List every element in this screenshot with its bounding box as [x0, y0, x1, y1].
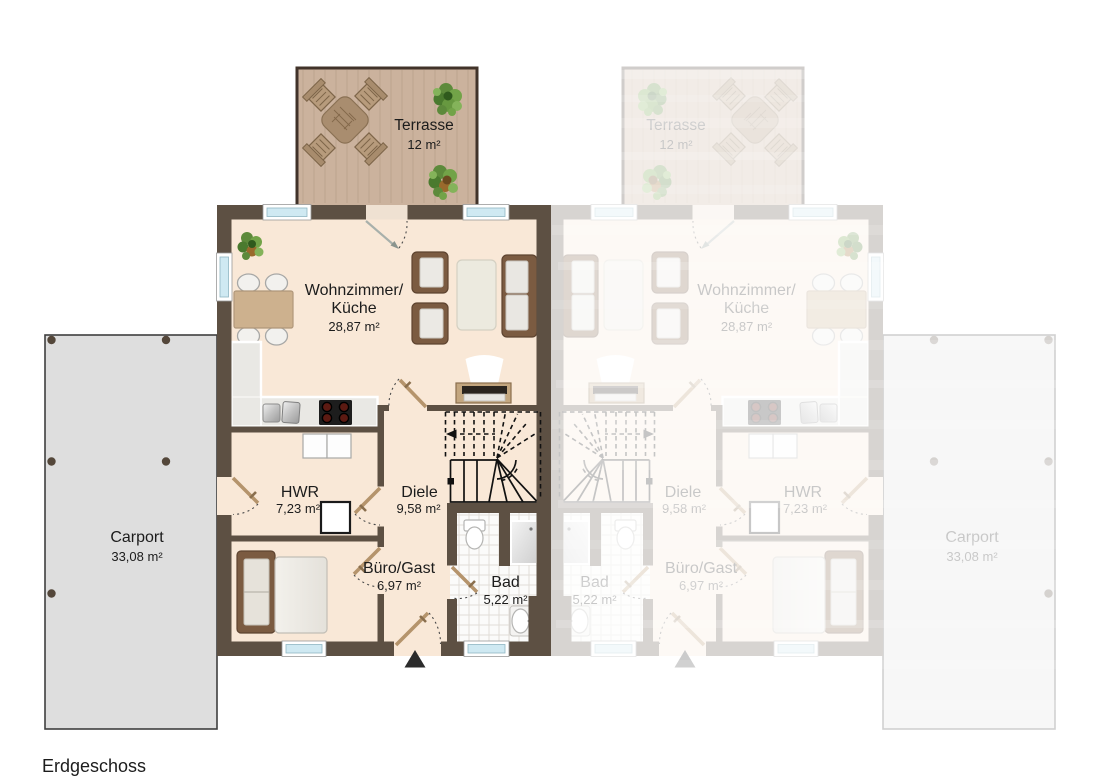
svg-text:5,22 m²: 5,22 m²	[572, 592, 617, 607]
svg-text:12 m²: 12 m²	[659, 137, 693, 152]
svg-text:5,22 m²: 5,22 m²	[483, 592, 528, 607]
svg-text:9,58 m²: 9,58 m²	[396, 501, 441, 516]
svg-text:Büro/Gast: Büro/Gast	[363, 560, 436, 577]
svg-text:Bad: Bad	[491, 574, 519, 591]
svg-text:HWR: HWR	[281, 484, 319, 501]
svg-text:33,08 m²: 33,08 m²	[946, 549, 998, 564]
svg-text:12 m²: 12 m²	[407, 137, 441, 152]
svg-text:28,87 m²: 28,87 m²	[721, 319, 773, 334]
svg-text:Büro/Gast: Büro/Gast	[665, 560, 738, 577]
svg-text:Diele: Diele	[401, 484, 438, 501]
svg-text:Terrasse: Terrasse	[394, 117, 453, 134]
svg-text:6,97 m²: 6,97 m²	[377, 578, 422, 593]
svg-text:Carport: Carport	[110, 529, 164, 546]
svg-text:Wohnzimmer/: Wohnzimmer/	[697, 282, 796, 299]
svg-text:Wohnzimmer/: Wohnzimmer/	[305, 282, 404, 299]
svg-text:Erdgeschoss: Erdgeschoss	[42, 756, 146, 776]
svg-text:Diele: Diele	[665, 484, 702, 501]
svg-text:HWR: HWR	[784, 484, 822, 501]
svg-text:Küche: Küche	[331, 300, 376, 317]
svg-text:28,87 m²: 28,87 m²	[328, 319, 380, 334]
svg-text:33,08 m²: 33,08 m²	[111, 549, 163, 564]
svg-text:7,23 m²: 7,23 m²	[276, 501, 321, 516]
